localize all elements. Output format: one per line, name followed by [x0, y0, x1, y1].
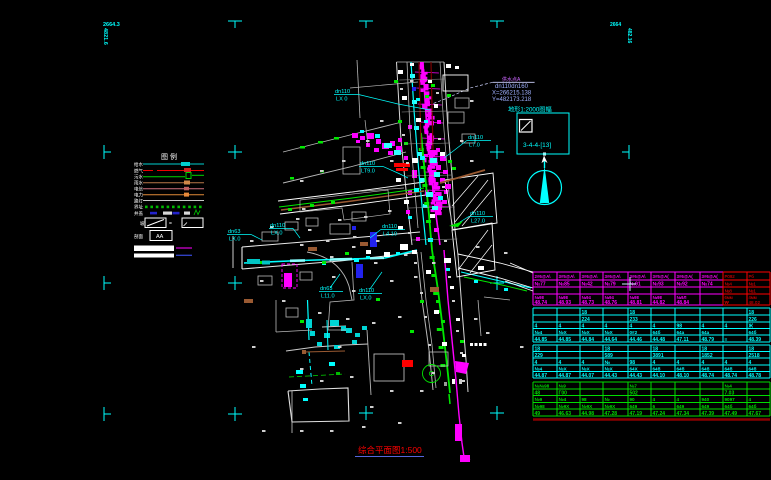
svg-text:64б: 64б	[749, 365, 757, 371]
svg-text:№№98: №№98	[535, 384, 550, 389]
svg-text:44.46: 44.46	[630, 337, 643, 343]
svg-text:44.43: 44.43	[630, 373, 643, 379]
svg-text:44.82: 44.82	[653, 300, 666, 306]
svg-text:64б: 64б	[677, 365, 685, 371]
svg-text:4: 4	[630, 323, 633, 329]
svg-text:L7.0: L7.0	[469, 142, 480, 148]
svg-text:48.79: 48.79	[702, 337, 715, 343]
svg-text:1852: 1852	[702, 353, 713, 359]
svg-text:№Х: №Х	[582, 366, 591, 371]
svg-text:48: 48	[535, 390, 541, 396]
svg-text:№9: №9	[559, 384, 567, 389]
svg-text:44.64: 44.64	[605, 337, 618, 343]
svg-text:47.11: 47.11	[677, 337, 689, 343]
svg-text:图 例: 图 例	[161, 152, 177, 161]
svg-text:4: 4	[605, 323, 608, 329]
svg-text:4: 4	[702, 360, 705, 366]
svg-text:№4: №4	[725, 282, 733, 287]
svg-text:Y=482173.218: Y=482173.218	[492, 97, 532, 103]
svg-text:64б: 64б	[653, 329, 661, 335]
svg-text:64б: 64б	[725, 403, 733, 409]
svg-text:AA: AA	[156, 234, 164, 240]
svg-text:4: 4	[653, 360, 656, 366]
svg-text:48.73: 48.73	[582, 300, 595, 306]
svg-text:3#6@A(: 3#6@A(	[677, 274, 694, 279]
svg-text:№4: №4	[535, 330, 543, 335]
svg-text:地形1:2000图幅: 地形1:2000图幅	[508, 106, 552, 114]
svg-text:48.74: 48.74	[702, 373, 715, 379]
svg-text:4: 4	[749, 360, 752, 366]
svg-text:Pб: Pб	[749, 274, 755, 279]
svg-text:№42: №42	[582, 282, 593, 288]
svg-text:№98: №98	[535, 404, 546, 409]
svg-text:№9: №9	[535, 397, 543, 402]
svg-text:44.07: 44.07	[582, 373, 595, 379]
svg-text:233: 233	[630, 317, 639, 323]
svg-text:48.10: 48.10	[677, 373, 690, 379]
svg-text:电信: 电信	[134, 186, 143, 193]
svg-text:48.39: 48.39	[749, 337, 762, 343]
svg-text:燃气: 燃气	[134, 168, 143, 175]
svg-text:64б: 64б	[702, 365, 710, 371]
svg-text:剖面: 剖面	[134, 233, 143, 240]
svg-text:P092: P092	[725, 274, 736, 279]
svg-text:Ж: Ж	[748, 323, 754, 329]
svg-text:№4: №4	[559, 397, 567, 402]
svg-text:18: 18	[749, 347, 755, 353]
svg-text:井盖: 井盖	[134, 210, 143, 217]
svg-text:224: 224	[582, 317, 591, 323]
svg-text:2664: 2664	[610, 22, 621, 28]
svg-text:48.76: 48.76	[605, 300, 618, 306]
svg-text:64б: 64б	[749, 329, 757, 335]
svg-text:雨水: 雨水	[134, 180, 143, 187]
svg-text:4: 4	[749, 397, 752, 402]
svg-text:4: 4	[653, 323, 656, 329]
svg-text:L27.0: L27.0	[471, 218, 485, 224]
svg-text:64Х: 64Х	[630, 366, 639, 371]
svg-text:2518: 2518	[749, 353, 760, 359]
svg-text:3#5@A\: 3#5@A\	[559, 274, 576, 279]
svg-text:48.78: 48.78	[749, 373, 762, 379]
svg-text:4: 4	[677, 360, 680, 366]
svg-text:4: 4	[535, 323, 538, 329]
svg-text:№7: №7	[630, 384, 638, 389]
svg-text:№79: №79	[605, 282, 616, 288]
svg-text:№Х: №Х	[559, 330, 568, 335]
svg-text:≡: ≡	[725, 337, 728, 343]
svg-text:98: 98	[677, 323, 683, 329]
svg-text:3#6@A\: 3#6@A\	[582, 274, 599, 279]
svg-text:№93: №93	[653, 282, 664, 288]
svg-text:4821.6: 4821.6	[102, 28, 108, 45]
svg-text:№74: №74	[702, 282, 713, 288]
svg-text:4: 4	[677, 397, 680, 402]
svg-text:№Х: №Х	[582, 330, 591, 335]
svg-text:46.63: 46.63	[559, 411, 572, 417]
svg-text:64б: 64б	[749, 403, 757, 409]
svg-text:№4: №4	[535, 366, 543, 371]
svg-text:49: 49	[535, 411, 541, 417]
svg-text:综合平面图1:500: 综合平面图1:500	[358, 445, 422, 455]
svg-text:649: 649	[630, 404, 638, 409]
svg-text:LX.0: LX.0	[271, 230, 283, 236]
svg-text:0#2: 0#2	[630, 330, 638, 335]
svg-text:47.49: 47.49	[725, 411, 738, 417]
svg-text:№4: №4	[725, 384, 733, 389]
svg-text:18: 18	[605, 347, 611, 353]
svg-text:64б: 64б	[725, 365, 733, 371]
svg-text:3#5@A(: 3#5@A(	[653, 274, 670, 279]
svg-text:18: 18	[630, 310, 636, 316]
svg-text:48.02: 48.02	[749, 300, 761, 305]
svg-text:47.24: 47.24	[653, 411, 666, 417]
svg-text:48.93: 48.93	[559, 300, 572, 306]
svg-text:44.48: 44.48	[653, 337, 666, 343]
svg-text:№92: №92	[677, 282, 688, 288]
svg-text:64б: 64б	[653, 365, 661, 371]
svg-text:589: 589	[605, 353, 614, 359]
svg-text:48.84: 48.84	[677, 300, 690, 306]
svg-text:LX.0: LX.0	[360, 295, 372, 301]
svg-text:№Х: №Х	[605, 330, 614, 335]
svg-text:№: №	[605, 360, 611, 366]
svg-text:№85: №85	[559, 282, 570, 288]
svg-text:47.19: 47.19	[630, 411, 643, 417]
svg-text:649: 649	[702, 404, 710, 409]
svg-text:№1: №1	[749, 289, 757, 294]
svg-text:L11.0: L11.0	[321, 293, 335, 299]
svg-text:dn110dn160: dn110dn160	[495, 84, 529, 90]
svg-text:坡: 坡	[140, 220, 145, 227]
svg-text:№Х: №Х	[559, 366, 568, 371]
svg-text:Г00: Г00	[559, 390, 568, 396]
svg-text:X=266215.138: X=266215.138	[492, 91, 532, 97]
svg-text:4: 4	[725, 360, 728, 366]
svg-text:№9Х: №9Х	[559, 404, 571, 409]
svg-text:№91: №91	[630, 282, 641, 288]
svg-text:4: 4	[725, 323, 728, 329]
svg-text:47.67: 47.67	[749, 411, 762, 417]
svg-text:502: 502	[630, 390, 639, 396]
svg-text:2#6@A\: 2#6@A\	[535, 274, 552, 279]
svg-text:44.43: 44.43	[605, 373, 618, 379]
svg-text:№77: №77	[535, 282, 546, 288]
svg-text:44.84: 44.84	[582, 337, 595, 343]
svg-text:路灯: 路灯	[134, 198, 143, 205]
svg-text:18: 18	[702, 347, 708, 353]
svg-text:4: 4	[535, 360, 538, 366]
svg-text:482.16: 482.16	[626, 28, 632, 44]
svg-text:4: 4	[559, 323, 562, 329]
svg-text:47.39: 47.39	[702, 411, 715, 417]
svg-text:649: 649	[677, 404, 685, 409]
svg-text:9097: 9097	[725, 397, 736, 402]
svg-text:226: 226	[749, 317, 758, 323]
svg-text:№Х: №Х	[605, 366, 614, 371]
svg-text:=: =	[169, 221, 172, 227]
svg-text:LX 0: LX 0	[336, 96, 348, 102]
svg-text:7.03: 7.03	[725, 390, 735, 396]
svg-text:界址: 界址	[134, 204, 143, 211]
svg-text:48.81: 48.81	[630, 300, 643, 306]
svg-text:3891: 3891	[653, 353, 664, 359]
svg-text:47.34: 47.34	[677, 411, 690, 417]
svg-text:229: 229	[535, 353, 544, 359]
svg-text:64а: 64а	[677, 330, 685, 335]
svg-text:3#6@A\: 3#6@A\	[605, 274, 622, 279]
svg-text:44.85: 44.85	[535, 337, 548, 343]
svg-text:940: 940	[702, 397, 710, 402]
svg-text:47.28: 47.28	[605, 411, 618, 417]
svg-text:3#6@A(: 3#6@A(	[702, 274, 719, 279]
svg-text:18: 18	[535, 347, 541, 353]
svg-text:48.74: 48.74	[725, 373, 738, 379]
svg-text:98: 98	[582, 397, 588, 402]
svg-text:№1: №1	[749, 282, 757, 287]
svg-text:4: 4	[582, 360, 585, 366]
svg-text:3#6@A\: 3#6@A\	[630, 274, 647, 279]
svg-text:₩: ₩	[725, 300, 730, 305]
svg-text:44.98: 44.98	[582, 411, 595, 417]
svg-text:98: 98	[630, 360, 636, 366]
svg-text:90: 90	[630, 397, 636, 402]
svg-text:给水: 给水	[134, 161, 143, 168]
svg-text:48.74: 48.74	[535, 300, 548, 306]
svg-text:№: №	[605, 397, 610, 402]
svg-text:44.10: 44.10	[653, 373, 666, 379]
svg-text:4: 4	[653, 397, 656, 402]
svg-text:№9Х: №9Х	[605, 404, 617, 409]
svg-text:3-4-4-[13]: 3-4-4-[13]	[523, 142, 551, 149]
svg-text:18: 18	[653, 347, 659, 353]
svg-text:LX.0: LX.0	[229, 236, 241, 242]
svg-text:4: 4	[582, 323, 585, 329]
svg-text:L4.10: L4.10	[383, 231, 397, 237]
svg-text:44.87: 44.87	[559, 373, 572, 379]
svg-text:污水: 污水	[134, 174, 143, 181]
svg-text:4: 4	[559, 360, 562, 366]
svg-text:64а: 64а	[702, 330, 710, 335]
svg-text:LT9.0: LT9.0	[361, 168, 375, 174]
svg-text:6: 6	[653, 404, 656, 409]
svg-text:44.87: 44.87	[535, 373, 548, 379]
svg-text:4: 4	[702, 323, 705, 329]
svg-text:№9Х: №9Х	[582, 404, 594, 409]
svg-text:18: 18	[749, 310, 755, 316]
svg-text:18: 18	[582, 310, 588, 316]
svg-text:№8: №8	[725, 289, 733, 294]
svg-text:44.85: 44.85	[559, 337, 572, 343]
